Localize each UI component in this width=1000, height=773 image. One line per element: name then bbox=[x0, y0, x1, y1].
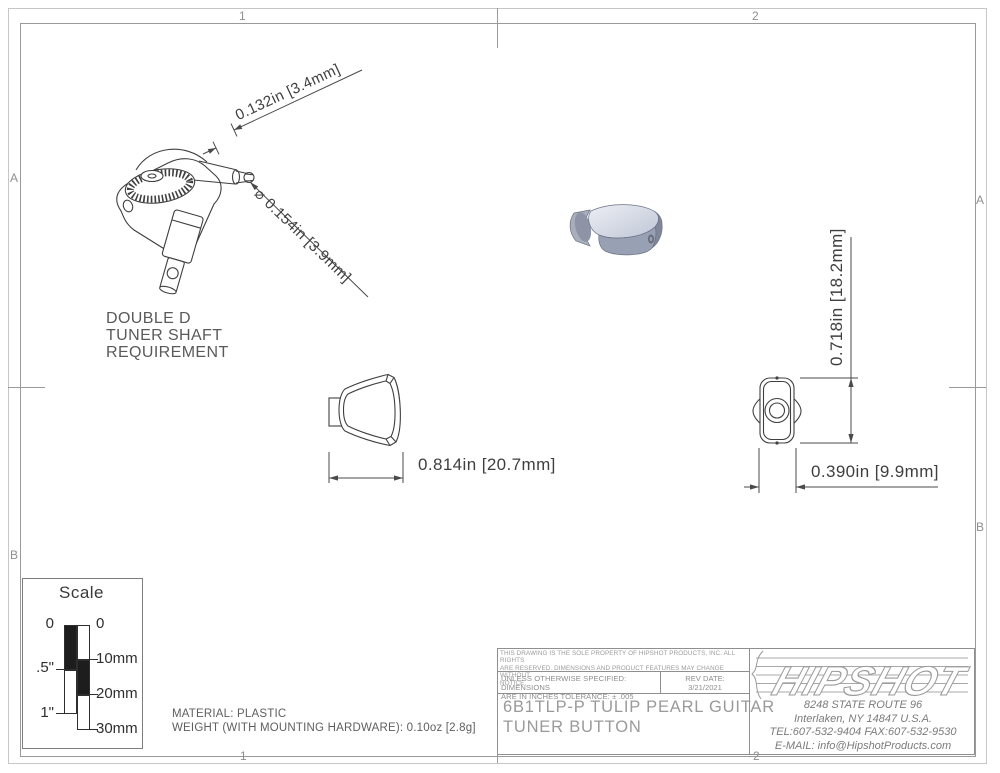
note-line: TUNER SHAFT bbox=[106, 327, 229, 344]
dim-front-width-label: 0.814in [20.7mm] bbox=[418, 456, 556, 474]
spec-line: UNLESS OTHERWISE SPECIFIED: DIMENSIONS bbox=[501, 674, 657, 692]
dim-side-width-label: 0.390in [9.9mm] bbox=[811, 463, 939, 481]
front-view bbox=[329, 375, 400, 446]
rev-date-value: 3/21/2021 bbox=[661, 683, 749, 692]
scale-inch-half: .5" bbox=[22, 660, 54, 675]
title-block-spec-cell: UNLESS OTHERWISE SPECIFIED: DIMENSIONS A… bbox=[497, 671, 661, 694]
side-view bbox=[753, 376, 801, 444]
scale-mm-20: 20mm bbox=[96, 686, 138, 701]
brand-address-street: 8248 STATE ROUTE 96 bbox=[752, 699, 974, 712]
scale-inch-1: 1" bbox=[26, 705, 54, 720]
title-block-part-cell: 6B1TLP-P TULIP PEARL GUITAR TUNER BUTTON bbox=[497, 693, 750, 755]
legal-line: THIS DRAWING IS THE SOLE PROPERTY OF HIP… bbox=[500, 650, 747, 665]
note-line: DOUBLE D bbox=[106, 310, 229, 327]
brand-phone: TEL:607-532-9404 FAX:607-532-9530 bbox=[752, 726, 974, 739]
scale-legend-title: Scale bbox=[22, 583, 141, 603]
brand-address-city: Interlaken, NY 14847 U.S.A. bbox=[752, 713, 974, 726]
part-number: 6B1TLP-P TULIP PEARL GUITAR bbox=[503, 697, 744, 717]
title-block-legal-cell: THIS DRAWING IS THE SOLE PROPERTY OF HIP… bbox=[497, 648, 750, 672]
scale-mm-bar-seg1 bbox=[77, 625, 90, 660]
drawing-sheet: 1 2 1 2 A B A B bbox=[0, 0, 1000, 773]
weight-note: WEIGHT (WITH MOUNTING HARDWARE): 0.10oz … bbox=[172, 721, 476, 735]
scale-mm-30: 30mm bbox=[96, 721, 138, 736]
double-d-note: DOUBLE D TUNER SHAFT REQUIREMENT bbox=[106, 310, 229, 361]
scale-inch-bar-black bbox=[64, 625, 77, 670]
scale-inch-bar-white bbox=[64, 670, 77, 714]
scale-mm-bar-seg2 bbox=[77, 660, 90, 695]
note-line: REQUIREMENT bbox=[106, 344, 229, 361]
scale-inch-0: 0 bbox=[28, 616, 54, 631]
dim-side-height-label: 0.718in [18.2mm] bbox=[828, 228, 846, 366]
scale-mm-bar-seg3 bbox=[77, 695, 90, 730]
scale-mm-10: 10mm bbox=[96, 651, 138, 666]
title-block-rev-cell: REV DATE: 3/21/2021 bbox=[660, 671, 750, 694]
scale-tick-one-inch bbox=[56, 713, 64, 714]
material-note: MATERIAL: PLASTIC bbox=[172, 707, 286, 721]
brand-email: E-MAIL: info@HipshotProducts.com bbox=[752, 740, 974, 753]
scale-tick-half-inch bbox=[56, 669, 64, 670]
scale-mm-0: 0 bbox=[96, 616, 104, 631]
part-name: TUNER BUTTON bbox=[503, 717, 744, 737]
rev-date-label: REV DATE: bbox=[661, 674, 749, 683]
tuner-assembly-view bbox=[117, 149, 254, 297]
iso-view bbox=[570, 205, 662, 255]
